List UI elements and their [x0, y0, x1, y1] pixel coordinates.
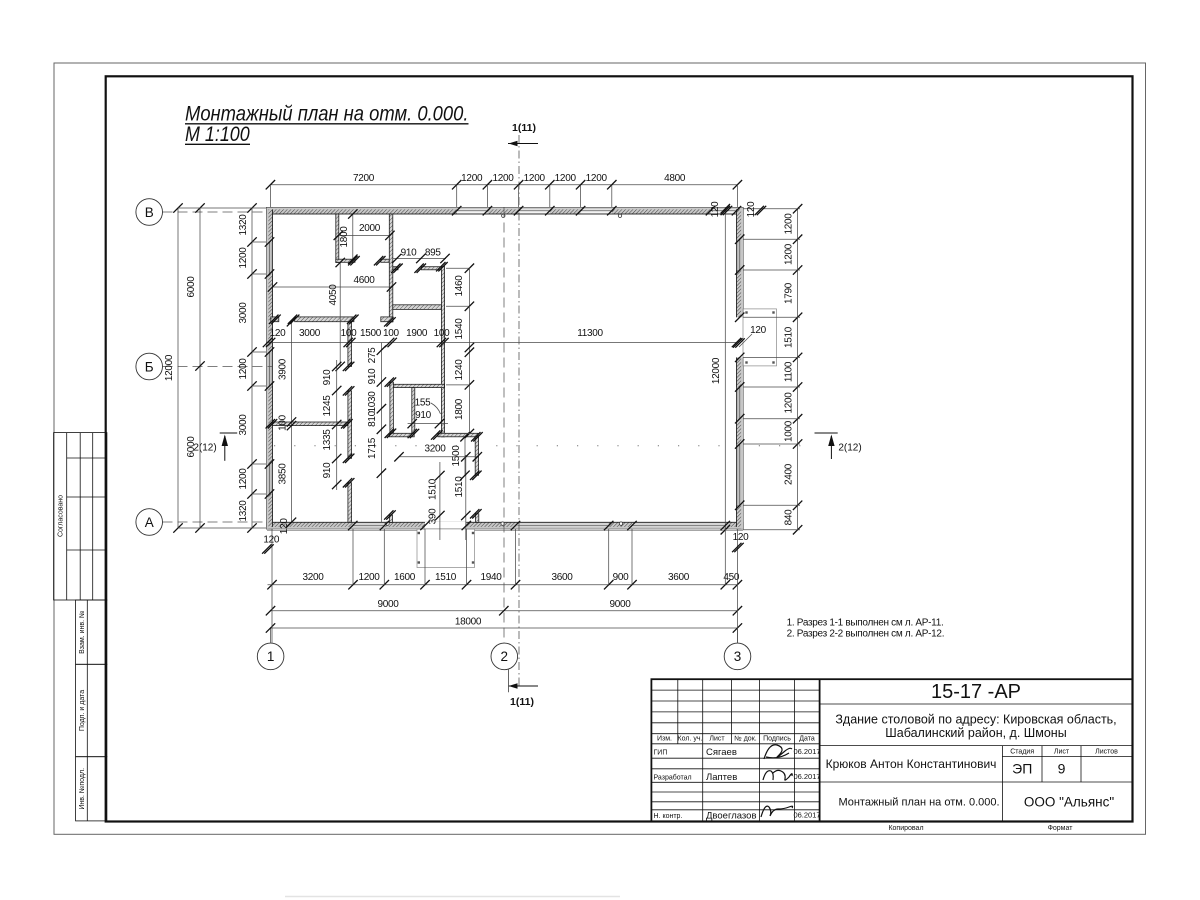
svg-text:1200: 1200 [784, 213, 795, 235]
svg-text:Дата: Дата [799, 736, 815, 743]
svg-text:1460: 1460 [454, 275, 465, 297]
svg-text:Согласовано: Согласовано [58, 495, 65, 537]
svg-text:Лист: Лист [709, 736, 725, 743]
svg-text:120: 120 [270, 328, 287, 339]
svg-text:Б: Б [145, 359, 154, 374]
svg-text:1335: 1335 [322, 429, 333, 451]
svg-text:1. Разрез 1-1 выполнен см л. А: 1. Разрез 1-1 выполнен см л. АР-11. [787, 617, 944, 628]
svg-text:1200: 1200 [358, 572, 380, 583]
svg-text:Здание столовой по адресу: Кир: Здание столовой по адресу: Кировская обл… [835, 713, 1116, 727]
svg-text:1790: 1790 [784, 282, 795, 304]
svg-text:1940: 1940 [480, 572, 502, 583]
svg-text:1510: 1510 [784, 326, 795, 348]
svg-text:Крюков Антон Константинович: Крюков Антон Константинович [826, 757, 997, 771]
svg-text:840: 840 [784, 509, 795, 526]
svg-text:1240: 1240 [454, 359, 465, 381]
svg-text:Подп. и дата: Подп. и дата [79, 690, 86, 731]
svg-text:1510: 1510 [454, 476, 465, 498]
svg-text:А: А [145, 515, 154, 530]
svg-text:№ док.: № док. [734, 736, 756, 743]
svg-text:6000: 6000 [186, 276, 197, 298]
svg-text:895: 895 [425, 247, 442, 258]
svg-text:2000: 2000 [359, 223, 381, 234]
svg-text:Разработал: Разработал [654, 773, 692, 781]
svg-text:Н. контр.: Н. контр. [654, 813, 683, 820]
svg-text:2: 2 [501, 649, 509, 664]
svg-text:1200: 1200 [784, 392, 795, 414]
svg-text:1500: 1500 [360, 328, 382, 339]
svg-text:1000: 1000 [784, 420, 795, 442]
svg-text:1510: 1510 [435, 572, 457, 583]
svg-text:155: 155 [415, 397, 432, 408]
svg-text:1: 1 [267, 649, 275, 664]
svg-text:Стадия: Стадия [1010, 748, 1034, 755]
svg-text:Подпись: Подпись [763, 736, 791, 743]
svg-text:910: 910 [415, 410, 432, 421]
svg-text:1(11): 1(11) [512, 122, 536, 134]
svg-text:1200: 1200 [461, 173, 483, 184]
svg-text:Кол. уч.: Кол. уч. [678, 736, 703, 743]
svg-text:9000: 9000 [609, 599, 631, 610]
svg-text:ГИП: ГИП [654, 749, 668, 756]
svg-text:Формат: Формат [1048, 825, 1074, 832]
svg-text:1200: 1200 [238, 358, 249, 380]
svg-text:910: 910 [322, 462, 333, 479]
svg-text:100: 100 [278, 414, 289, 431]
svg-text:1200: 1200 [784, 243, 795, 265]
svg-text:Инв. №подл.: Инв. №подл. [79, 768, 86, 810]
svg-text:12000: 12000 [711, 357, 722, 384]
svg-text:120: 120 [279, 518, 290, 535]
svg-text:Двоеглазов: Двоеглазов [706, 811, 757, 822]
svg-text:1(11): 1(11) [510, 696, 534, 708]
svg-text:7200: 7200 [353, 173, 375, 184]
svg-text:ООО "Альянс": ООО "Альянс" [1024, 794, 1114, 809]
svg-text:В: В [145, 205, 154, 220]
svg-text:11300: 11300 [577, 328, 603, 339]
svg-text:1800: 1800 [339, 226, 350, 248]
svg-text:1320: 1320 [238, 214, 249, 236]
svg-text:910: 910 [367, 368, 378, 385]
svg-text:120: 120 [263, 534, 280, 545]
svg-text:3000: 3000 [299, 328, 321, 339]
svg-text:3000: 3000 [238, 414, 249, 436]
svg-text:1900: 1900 [406, 328, 428, 339]
svg-text:1200: 1200 [555, 173, 577, 184]
svg-text:1100: 1100 [784, 361, 795, 382]
svg-text:1200: 1200 [492, 173, 514, 184]
svg-text:100: 100 [434, 328, 451, 339]
svg-text:Копировал: Копировал [888, 825, 923, 832]
svg-text:4800: 4800 [664, 173, 686, 184]
svg-text:1245: 1245 [322, 395, 333, 417]
svg-text:1715: 1715 [367, 437, 378, 459]
svg-text:Листов: Листов [1095, 748, 1118, 755]
svg-text:3: 3 [734, 649, 742, 664]
svg-text:3600: 3600 [668, 572, 690, 583]
svg-text:1200: 1200 [238, 247, 249, 269]
svg-text:06.2017: 06.2017 [793, 747, 820, 756]
svg-text:120: 120 [750, 325, 767, 336]
svg-text:2. Разрез 2-2 выполнен см л. А: 2. Разрез 2-2 выполнен см л. АР-12. [787, 628, 945, 639]
svg-text:06.2017: 06.2017 [793, 811, 820, 820]
svg-text:3600: 3600 [551, 572, 573, 583]
svg-text:810: 810 [367, 410, 378, 427]
svg-text:1200: 1200 [586, 173, 608, 184]
svg-text:3900: 3900 [278, 358, 289, 380]
svg-text:3000: 3000 [238, 302, 249, 324]
svg-text:1030: 1030 [367, 391, 378, 413]
svg-text:6000: 6000 [186, 436, 197, 458]
svg-text:1500: 1500 [451, 445, 462, 467]
svg-text:15-17 -АР: 15-17 -АР [931, 681, 1021, 703]
svg-text:100: 100 [383, 328, 400, 339]
svg-text:Шабалинский район, д. Шмоны: Шабалинский район, д. Шмоны [885, 726, 1066, 740]
svg-text:Лаптев: Лаптев [706, 772, 737, 783]
svg-text:4600: 4600 [353, 275, 375, 286]
svg-text:3200: 3200 [302, 572, 324, 583]
svg-text:1800: 1800 [454, 398, 465, 420]
svg-text:1320: 1320 [238, 500, 249, 522]
svg-text:3850: 3850 [278, 463, 289, 485]
svg-text:ЭП: ЭП [1012, 761, 1032, 777]
svg-text:1540: 1540 [454, 318, 465, 340]
svg-text:Изм.: Изм. [657, 736, 672, 743]
svg-text:1600: 1600 [394, 572, 416, 583]
svg-text:3200: 3200 [424, 443, 446, 454]
svg-text:900: 900 [613, 572, 630, 583]
svg-text:120: 120 [733, 532, 750, 543]
svg-text:12000: 12000 [164, 354, 175, 381]
svg-text:Взам. инв. №: Взам. инв. № [79, 611, 86, 654]
svg-text:Сягаев: Сягаев [706, 747, 737, 758]
svg-text:910: 910 [401, 247, 418, 258]
svg-text:Лист: Лист [1054, 748, 1070, 755]
svg-text:Монтажный план на отм. 0.000.: Монтажный план на отм. 0.000. [838, 797, 999, 809]
svg-text:2(12): 2(12) [838, 443, 861, 454]
svg-text:1200: 1200 [524, 173, 546, 184]
svg-text:9000: 9000 [377, 599, 399, 610]
svg-text:275: 275 [367, 347, 378, 364]
svg-text:1510: 1510 [428, 478, 439, 500]
svg-text:100: 100 [341, 328, 358, 339]
svg-text:9: 9 [1058, 761, 1066, 777]
svg-text:М 1:100: М 1:100 [185, 122, 250, 146]
svg-text:2400: 2400 [784, 463, 795, 485]
svg-text:18000: 18000 [455, 617, 482, 628]
svg-text:1200: 1200 [238, 468, 249, 490]
svg-text:910: 910 [322, 369, 333, 386]
svg-text:06.2017: 06.2017 [793, 772, 820, 781]
svg-text:4050: 4050 [328, 284, 339, 306]
